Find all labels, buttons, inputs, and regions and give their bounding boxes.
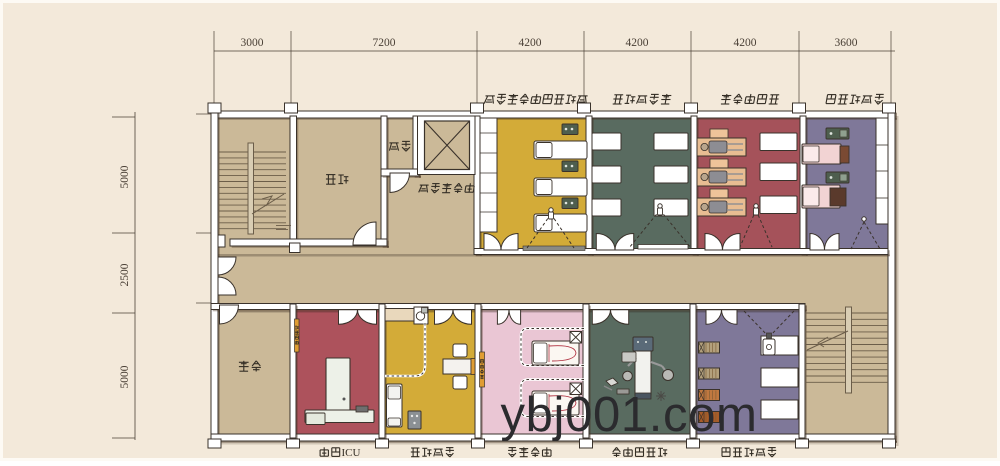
svg-text:ICU: ICU xyxy=(342,447,361,459)
svg-text:4200: 4200 xyxy=(519,37,542,49)
svg-text:3000: 3000 xyxy=(241,37,264,49)
svg-text:3600: 3600 xyxy=(835,37,858,49)
svg-text:2500: 2500 xyxy=(119,263,131,286)
svg-text:5000: 5000 xyxy=(119,165,131,188)
svg-text:7200: 7200 xyxy=(373,37,396,49)
svg-text:4200: 4200 xyxy=(626,37,649,49)
svg-text:ybj001.com: ybj001.com xyxy=(501,388,758,442)
svg-text:4200: 4200 xyxy=(734,37,757,49)
svg-text:5000: 5000 xyxy=(119,365,131,388)
